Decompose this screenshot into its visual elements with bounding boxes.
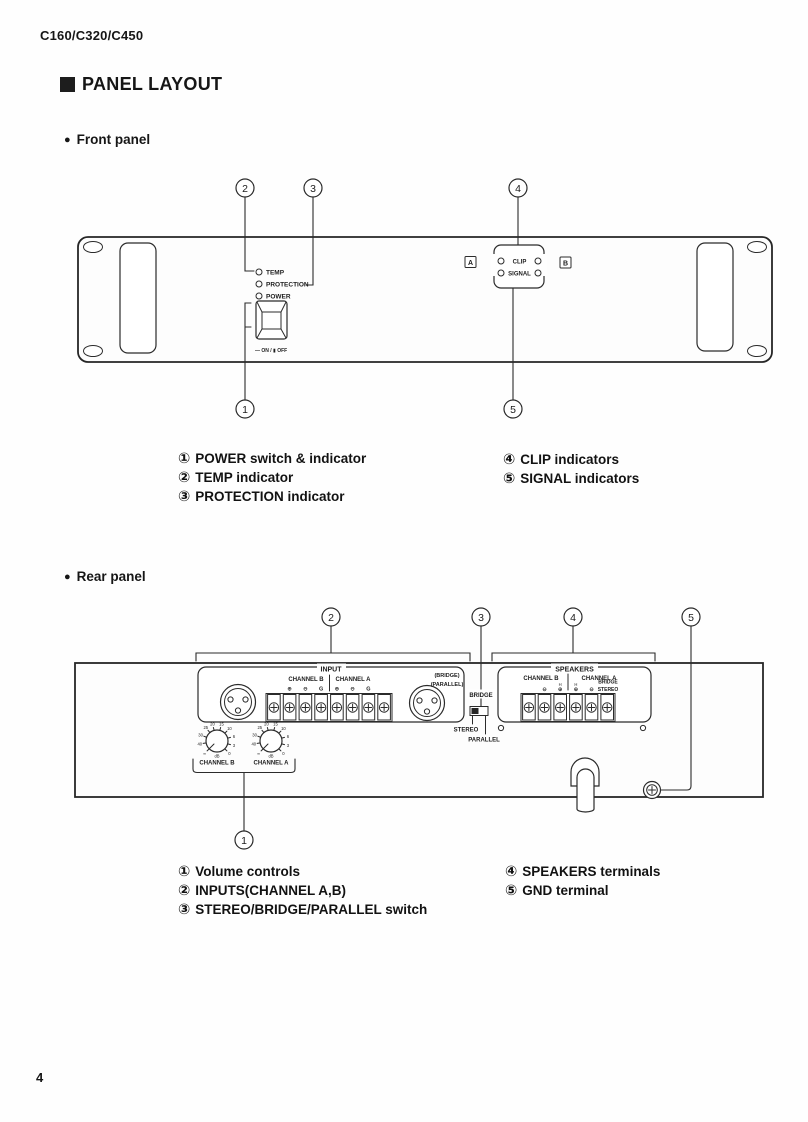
callout-4-number: 4 (515, 183, 521, 195)
screw-hole (84, 242, 103, 253)
screw-hole (84, 346, 103, 357)
panel-screw (640, 725, 645, 730)
power-cord (571, 758, 599, 812)
spk-b-plus: ⊕ (558, 687, 563, 693)
volume-channel-a-label: CHANNEL A (253, 761, 289, 767)
callout-2-number: 2 (328, 612, 334, 624)
rear-legend-col2: ④SPEAKERS terminals ⑤GND terminal (505, 864, 660, 902)
legend-label: CLIP indicators (520, 452, 619, 467)
input-terminal (299, 695, 312, 721)
front-legend-col1: ①POWER switch & indicator ②TEMP indicato… (178, 451, 366, 507)
front-legend-col2: ④CLIP indicators ⑤SIGNAL indicators (503, 452, 639, 490)
scale-inf: ∞ (257, 751, 260, 756)
legend-item: ④SPEAKERS terminals (505, 864, 660, 883)
scale-15: 15 (219, 722, 224, 727)
section-square-icon (60, 77, 75, 92)
scale-40: 40 (251, 742, 256, 747)
protection-led-label: PROTECTION (266, 282, 309, 289)
rear-panel-heading-text: Rear panel (77, 569, 146, 584)
input-a-minus: ⊖ (350, 687, 355, 693)
front-panel-heading: ● Front panel (64, 132, 150, 147)
legend-label: PROTECTION indicator (195, 489, 344, 504)
callout-3-number: 3 (478, 612, 484, 624)
scale-20: 20 (264, 722, 269, 727)
legend-item: ④CLIP indicators (503, 452, 639, 471)
callout-1-number: 1 (242, 404, 248, 416)
scale-30: 30 (198, 733, 203, 738)
speaker-terminal (523, 695, 536, 721)
input-xlr-bridge (410, 686, 445, 721)
mode-switch-parallel-label: PARALLEL (468, 738, 500, 744)
temp-led (256, 269, 262, 275)
input-section: INPUT CHANNEL B CHANNEL A ⊕ ⊖ G ⊕ ⊖ G (B… (198, 664, 464, 723)
scale-10: 10 (227, 726, 232, 731)
legend-item: ③STEREO/BRIDGE/PARALLEL switch (178, 902, 427, 921)
right-vent (697, 243, 733, 351)
temp-led-label: TEMP (266, 270, 285, 277)
rear-panel-diagram: INPUT CHANNEL B CHANNEL A ⊕ ⊖ G ⊕ ⊖ G (B… (0, 600, 808, 860)
callout-line-2 (196, 626, 470, 661)
input-title: INPUT (321, 667, 343, 674)
input-terminal (346, 695, 359, 721)
legend-item: ②TEMP indicator (178, 470, 366, 489)
input-terminal (362, 695, 375, 721)
legend-item: ②INPUTS(CHANNEL A,B) (178, 883, 427, 902)
front-panel-heading-text: Front panel (77, 132, 151, 147)
scale-db: dB (214, 754, 219, 759)
scale-30: 30 (252, 733, 257, 738)
speakers-section: SPEAKERS CHANNEL B CHANNEL A H H ⊖ ⊕ ⊕ ⊖… (498, 664, 651, 731)
clip-led-b (535, 258, 541, 264)
legend-label: SIGNAL indicators (520, 471, 639, 486)
input-b-ground: G (319, 687, 323, 693)
panel-screw (498, 725, 503, 730)
legend-label: SPEAKERS terminals (522, 864, 660, 879)
spk-b-minus: ⊖ (542, 687, 547, 693)
legend-label: TEMP indicator (195, 470, 293, 485)
screw-hole (748, 242, 767, 253)
left-vent (120, 243, 156, 353)
legend-num: ① (178, 864, 190, 880)
clip-led-a (498, 258, 504, 264)
input-b-plus: ⊕ (287, 687, 292, 693)
legend-num: ② (178, 470, 190, 486)
document-model-title: C160/C320/C450 (40, 28, 143, 43)
input-terminal (268, 695, 281, 721)
legend-label: INPUTS(CHANNEL A,B) (195, 883, 346, 898)
input-terminal (315, 695, 328, 721)
legend-num: ① (178, 451, 190, 467)
legend-item: ⑤SIGNAL indicators (503, 471, 639, 490)
legend-label: POWER switch & indicator (195, 451, 366, 466)
legend-item: ①Volume controls (178, 864, 427, 883)
speaker-terminal (585, 695, 598, 721)
speaker-terminal (554, 695, 567, 721)
section-title: PANEL LAYOUT (82, 74, 222, 95)
legend-num: ③ (178, 902, 190, 918)
legend-label: STEREO/BRIDGE/PARALLEL switch (195, 902, 427, 917)
speakers-channel-b-label: CHANNEL B (523, 676, 559, 682)
input-xlr-left (221, 685, 256, 720)
spk-bridge-label: BRIDGE (598, 680, 618, 686)
callout-line-4 (492, 626, 655, 661)
gnd-terminal (644, 782, 661, 799)
mode-switch-stereo-label: STEREO (454, 728, 479, 734)
bullet-icon: ● (64, 134, 71, 146)
scale-15: 15 (273, 722, 278, 727)
bullet-icon: ● (64, 571, 71, 583)
power-led-label: POWER (266, 294, 291, 301)
input-channel-b-label: CHANNEL B (288, 677, 324, 683)
protection-led (256, 281, 262, 287)
callout-3-number: 3 (310, 183, 316, 195)
front-chassis (78, 237, 772, 362)
callout-5-number: 5 (688, 612, 694, 624)
channel-b-badge: B (563, 261, 568, 268)
channel-a-badge: A (468, 260, 473, 267)
callout-5-number: 5 (510, 404, 516, 416)
input-b-minus: ⊖ (303, 687, 308, 693)
scale-10: 10 (281, 726, 286, 731)
legend-label: GND terminal (522, 883, 608, 898)
legend-label: Volume controls (195, 864, 300, 879)
scale-25: 25 (257, 725, 262, 730)
input-terminal (283, 695, 296, 721)
clip-label: CLIP (513, 260, 527, 266)
callout-1-number: 1 (241, 835, 247, 847)
power-switch-label: — ON / ▮ OFF (255, 348, 287, 354)
input-terminal (378, 695, 391, 721)
rear-panel-heading: ● Rear panel (64, 569, 146, 584)
parallel-paren-label: (PARALLEL) (431, 682, 464, 688)
legend-item: ⑤GND terminal (505, 883, 660, 902)
signal-label: SIGNAL (508, 272, 531, 278)
signal-led-a (498, 270, 504, 276)
input-terminal (331, 695, 344, 721)
bridge-paren-label: (BRIDGE) (434, 673, 459, 679)
input-channel-a-label: CHANNEL A (335, 677, 371, 683)
legend-num: ④ (503, 452, 515, 468)
mode-switch-bridge-label: BRIDGE (469, 693, 492, 699)
spk-stereo-label: STEREO (598, 687, 619, 693)
input-a-plus: ⊕ (335, 687, 340, 693)
legend-item: ③PROTECTION indicator (178, 489, 366, 508)
signal-led-b (535, 270, 541, 276)
callout-2-number: 2 (242, 183, 248, 195)
screw-hole (748, 346, 767, 357)
legend-num: ④ (505, 864, 517, 880)
legend-num: ③ (178, 489, 190, 505)
volume-channel-b-label: CHANNEL B (199, 761, 235, 767)
speakers-title: SPEAKERS (555, 667, 594, 674)
scale-25: 25 (203, 725, 208, 730)
speaker-terminal (538, 695, 551, 721)
callout-4-number: 4 (570, 612, 576, 624)
scale-40: 40 (197, 742, 202, 747)
power-led (256, 293, 262, 299)
scale-inf: ∞ (203, 751, 206, 756)
scale-20: 20 (210, 722, 215, 727)
speaker-terminal (570, 695, 583, 721)
rear-legend-col1: ①Volume controls ②INPUTS(CHANNEL A,B) ③S… (178, 864, 427, 920)
speaker-terminal (601, 695, 614, 721)
mode-switch-knob (472, 708, 479, 714)
front-panel-diagram: TEMP PROTECTION POWER — ON / ▮ OFF CLIP … (0, 165, 808, 435)
scale-db: dB (268, 754, 273, 759)
spk-a-minus: ⊖ (589, 687, 594, 693)
input-a-ground: G (366, 687, 370, 693)
spk-a-plus: ⊕ (574, 687, 579, 693)
legend-item: ①POWER switch & indicator (178, 451, 366, 470)
section-heading: PANEL LAYOUT (60, 74, 222, 95)
legend-num: ⑤ (503, 471, 515, 487)
legend-num: ② (178, 883, 190, 899)
legend-num: ⑤ (505, 883, 517, 899)
page-number: 4 (36, 1070, 43, 1085)
